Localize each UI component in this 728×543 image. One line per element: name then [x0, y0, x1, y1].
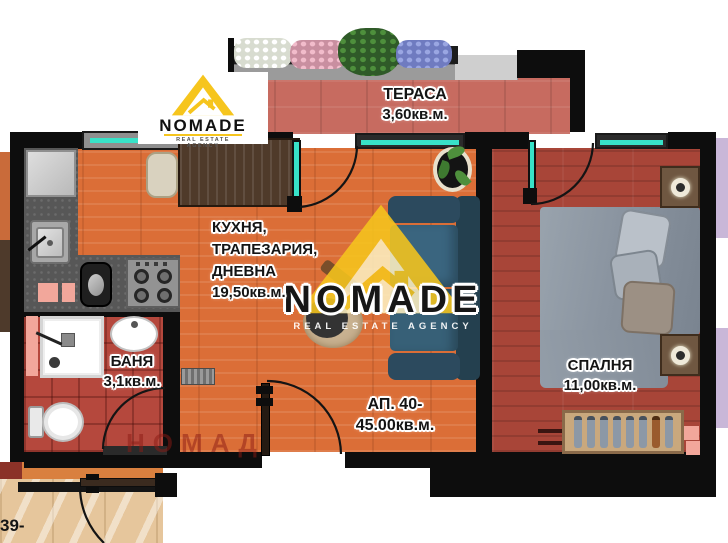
clothes-hanger [613, 416, 621, 448]
wall-left [10, 132, 24, 462]
radiator-marker [686, 441, 700, 455]
bedroom-window [595, 133, 668, 149]
bedroom-area: 11,00кв.м. [534, 376, 666, 396]
terrace-right-wall [570, 50, 585, 132]
kitchen-sink-icon [30, 220, 70, 264]
dining-chair-icon [146, 152, 178, 198]
door-handle-block [256, 386, 273, 394]
adjacent-area-sliver-bottom [716, 328, 728, 428]
plant-leaf [436, 160, 452, 180]
nightstand-icon [660, 166, 700, 208]
radiator-marker [62, 283, 75, 302]
wall-top-c [465, 132, 529, 149]
clothes-hanger [665, 416, 673, 448]
clothes-hanger [652, 416, 660, 448]
threshold-line [538, 441, 562, 445]
neighbor-floor-sliver [0, 152, 10, 240]
stove-burner [134, 269, 149, 284]
green-plant-icon [338, 28, 400, 76]
fridge-icon [26, 150, 76, 197]
wall-right [700, 132, 716, 497]
washbasin-icon [110, 316, 158, 352]
bedroom-name: СПАЛНЯ [534, 356, 666, 376]
kitchen-living-label: КУХНЯ, ТРАПЕЗАРИЯ, ДНЕВНА 19,50кв.м. [212, 217, 342, 304]
door-handle-block [256, 398, 273, 406]
clothes-hanger [600, 416, 608, 448]
toilet-bowl [42, 402, 84, 442]
white-flowers-icon [234, 38, 292, 68]
logo-tagline: REAL ESTATE AGENCY [164, 134, 242, 149]
bed-pillow-taupe [620, 280, 676, 336]
lamp-icon [671, 178, 690, 197]
basin-faucet [131, 321, 138, 328]
coffee-machine-top [88, 274, 104, 296]
terrace-area: 3,60кв.м. [348, 105, 482, 125]
sink-drain [47, 240, 53, 246]
stove-burner [157, 269, 172, 284]
sofa-armrest [388, 353, 460, 380]
bathroom-label: БАНЯ 3,1кв.м. [70, 352, 194, 392]
wardrobe-icon [562, 410, 684, 454]
blue-flowers-icon [396, 40, 452, 68]
shower-head [61, 333, 75, 347]
radiator-marker [684, 426, 699, 440]
threshold-line [538, 429, 562, 433]
cyrillic-watermark: НОМАД [126, 428, 265, 459]
clothes-hanger [639, 416, 647, 448]
nomade-house-icon [171, 74, 235, 116]
bathroom-name: БАНЯ [70, 352, 194, 372]
nightstand-icon [660, 334, 700, 376]
window-glass [600, 140, 664, 145]
clothes-hanger [626, 416, 634, 448]
radiator-marker [38, 283, 58, 302]
window-glass [361, 140, 459, 145]
floor-plan: ТЕРАСА 3,60кв.м. КУХНЯ, ТРАПЕЗАРИЯ, ДНЕВ… [0, 0, 728, 543]
door-handle-block [86, 487, 99, 493]
terrace-shelf [455, 55, 517, 80]
bathroom-area: 3,1кв.м. [70, 372, 194, 392]
corridor-dark-strip [0, 462, 22, 479]
terrace-label: ТЕРАСА 3,60кв.м. [348, 84, 482, 125]
unit-label-line1: АП. 40- [334, 394, 456, 415]
stove-knobs [136, 262, 172, 266]
stove-burner [157, 288, 172, 303]
watermark-tagline: REAL ESTATE AGENCY [278, 321, 488, 332]
wall-bottom-right-block [430, 452, 716, 497]
logo-name: NOMADE [138, 116, 268, 136]
neighbor-furniture-sliver [0, 240, 10, 332]
nomade-logo: NOMADE REAL ESTATE AGENCY [138, 72, 268, 144]
door-handle-block [86, 474, 99, 480]
door-hinge-block [523, 188, 537, 204]
stove-icon [126, 258, 180, 308]
terrace-name: ТЕРАСА [348, 84, 482, 105]
toilet-icon [28, 402, 84, 442]
corridor-wall-stub [155, 473, 177, 497]
bathroom-pink-panel [26, 316, 38, 376]
adjacent-area-sliver-top [716, 138, 728, 238]
clothes-hanger [574, 416, 582, 448]
clothes-hanger [587, 416, 595, 448]
kitchen-living-line1: КУХНЯ, [212, 217, 342, 239]
unit-label: АП. 40- 45.00кв.м. [334, 394, 456, 436]
shower-drain [49, 357, 60, 368]
wall-bottom-mid [345, 452, 430, 468]
kitchen-living-line2: ТРАПЕЗАРИЯ, [212, 239, 342, 261]
bedroom-label: СПАЛНЯ 11,00кв.м. [534, 356, 666, 396]
shower-arm [36, 331, 63, 345]
stove-burner [134, 288, 149, 303]
plant-leaf [446, 144, 466, 160]
coffee-machine-icon [80, 262, 112, 307]
unit-label-line2: 45.00кв.м. [334, 415, 456, 436]
potted-plant-icon [433, 147, 472, 192]
kitchen-living-line3: ДНЕВНА [212, 261, 342, 283]
lamp-icon [671, 346, 690, 365]
neighbor-unit-label: 39- [0, 515, 25, 537]
kitchen-living-area: 19,50кв.м. [212, 282, 342, 304]
